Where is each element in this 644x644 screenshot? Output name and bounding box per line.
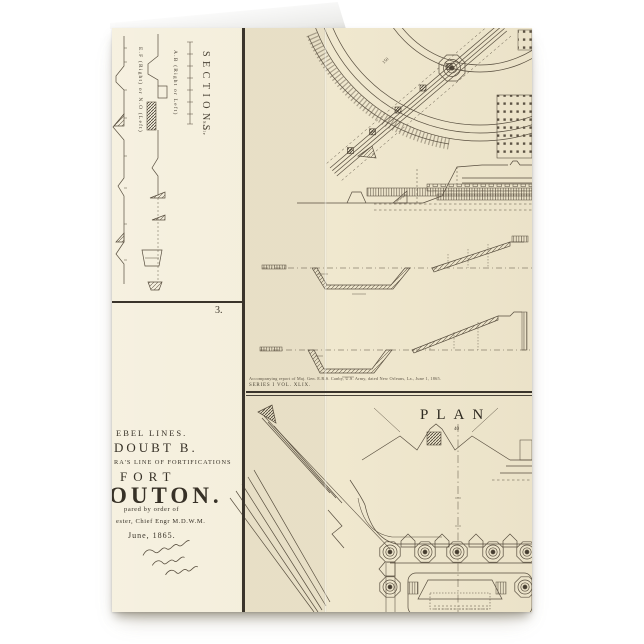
greeting-card-map[interactable]: SECTIONS Scale A.B (Right or Left) E.F (… bbox=[112, 28, 532, 612]
gun-platform-row bbox=[380, 534, 532, 562]
gun-platform-column bbox=[379, 562, 532, 612]
sections-drawings bbox=[113, 34, 193, 290]
plate-rule-bottom bbox=[246, 395, 532, 396]
fort-plan-fragment bbox=[304, 28, 532, 210]
title-line-rebel-lines: EBEL LINES. bbox=[116, 428, 187, 438]
title-line-engineer: ester, Chief Engr M.D.W.M. bbox=[116, 518, 205, 525]
inner-compound bbox=[408, 573, 532, 612]
title-line-prepared: pared by order of bbox=[124, 506, 179, 513]
panel-divider-horizontal bbox=[112, 301, 243, 303]
section-label-ab: A.B (Right or Left) bbox=[172, 50, 178, 116]
card-fold-crease bbox=[324, 28, 327, 612]
figure-number: 3. bbox=[215, 305, 223, 316]
ditch-section-2 bbox=[260, 312, 532, 377]
plate-rule-top bbox=[246, 391, 532, 393]
series-volume-label: SERIES I VOL. XLIX. bbox=[249, 383, 311, 388]
sections-scale-label: Scale bbox=[202, 121, 207, 136]
signature-script bbox=[142, 540, 198, 578]
section-label-ef: E.F (Right) or N.O (Left) bbox=[137, 47, 143, 133]
card-back-fold bbox=[110, 2, 346, 29]
profile-section bbox=[297, 161, 532, 203]
report-citation: Accompanying report of Maj. Gen. E.R.S. … bbox=[249, 376, 441, 381]
panel-divider-vertical bbox=[242, 28, 245, 612]
ditch-section-1 bbox=[262, 236, 532, 294]
title-line-date: June, 1865. bbox=[128, 531, 176, 540]
plan-sublabel: 40 bbox=[454, 427, 459, 432]
page: { "page": { "background": "#ffffff" }, "… bbox=[0, 0, 644, 644]
plan-title: PLAN bbox=[420, 407, 491, 424]
title-line-fortifications: RA'S LINE OF FORTIFICATIONS bbox=[114, 459, 232, 466]
plan-drawing bbox=[230, 405, 532, 612]
title-line-redoubt: DOUBT B. bbox=[114, 440, 198, 456]
